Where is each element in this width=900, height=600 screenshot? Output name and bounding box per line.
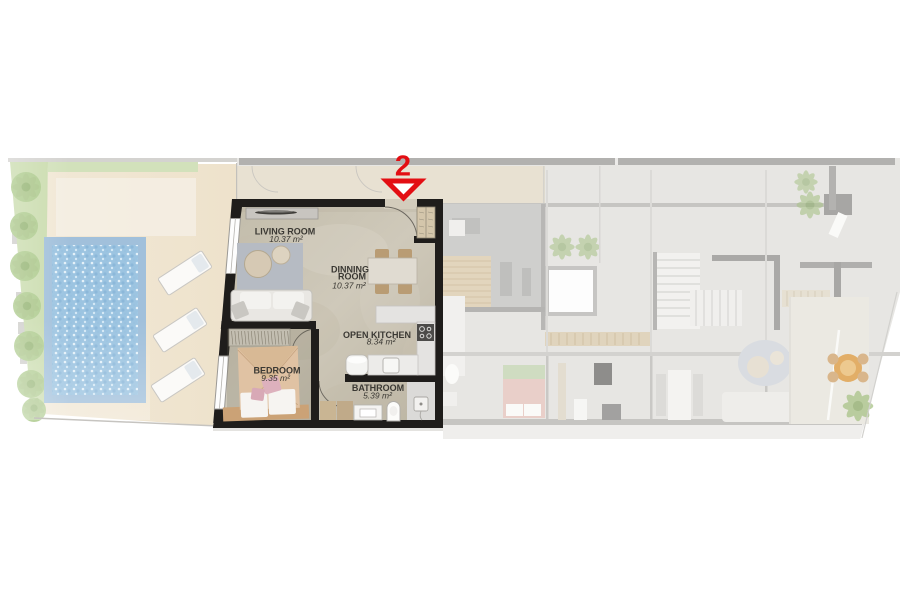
svg-text:10.37 m²: 10.37 m² (269, 234, 304, 244)
svg-text:8.34 m²: 8.34 m² (367, 337, 397, 347)
svg-text:9.35 m²: 9.35 m² (261, 373, 291, 383)
svg-text:5.39 m²: 5.39 m² (363, 391, 393, 401)
svg-text:2: 2 (395, 151, 411, 183)
svg-text:10.37 m²: 10.37 m² (332, 281, 367, 291)
